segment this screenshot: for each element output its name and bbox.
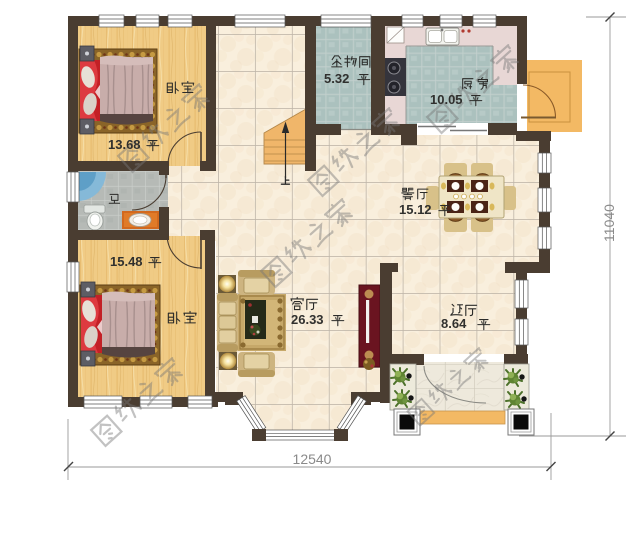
svg-text:5.32: 5.32 (324, 71, 349, 86)
svg-text:26.33: 26.33 (291, 312, 324, 327)
svg-text:11040: 11040 (601, 204, 617, 242)
svg-text:10.05: 10.05 (430, 92, 463, 107)
svg-text:15.12: 15.12 (399, 202, 432, 217)
svg-text:8.64: 8.64 (441, 316, 467, 331)
svg-text:13.68: 13.68 (108, 137, 141, 152)
svg-text:15.48: 15.48 (110, 254, 143, 269)
svg-text:12540: 12540 (293, 451, 332, 467)
